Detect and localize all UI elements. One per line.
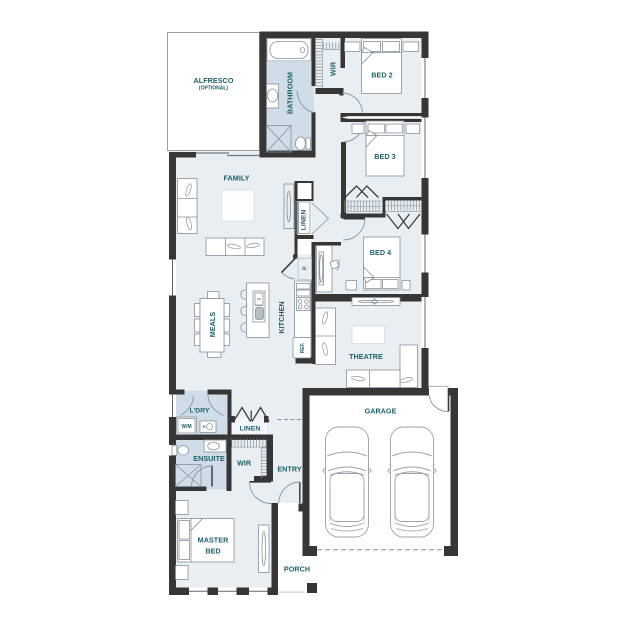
svg-text:LINEN: LINEN	[301, 210, 308, 231]
svg-text:MASTER: MASTER	[198, 536, 229, 545]
svg-text:MEALS: MEALS	[208, 312, 217, 338]
svg-text:WIR: WIR	[237, 459, 252, 468]
svg-text:PORCH: PORCH	[284, 565, 310, 574]
svg-text:BATHROOM: BATHROOM	[286, 72, 295, 114]
svg-text:FAMILY: FAMILY	[224, 174, 250, 183]
svg-text:(OPTIONAL): (OPTIONAL)	[199, 86, 228, 92]
svg-text:BED 2: BED 2	[371, 71, 392, 80]
svg-text:ALFRESCO: ALFRESCO	[194, 76, 234, 85]
svg-text:L'DRY: L'DRY	[189, 408, 210, 415]
svg-text:P.: P.	[303, 265, 309, 270]
svg-text:THEATRE: THEATRE	[349, 352, 383, 361]
svg-text:LINEN: LINEN	[240, 426, 261, 433]
svg-text:WIR: WIR	[329, 61, 338, 76]
svg-text:BED 4: BED 4	[370, 248, 391, 257]
svg-text:BED: BED	[205, 547, 220, 556]
svg-text:REF.: REF.	[300, 342, 306, 353]
svg-text:W/M: W/M	[181, 424, 191, 430]
svg-text:KITCHEN: KITCHEN	[277, 301, 286, 333]
svg-text:ENTRY: ENTRY	[277, 465, 301, 474]
svg-text:GARAGE: GARAGE	[365, 407, 397, 416]
svg-text:ENSUITE: ENSUITE	[193, 454, 225, 463]
svg-text:BED 3: BED 3	[374, 152, 395, 161]
